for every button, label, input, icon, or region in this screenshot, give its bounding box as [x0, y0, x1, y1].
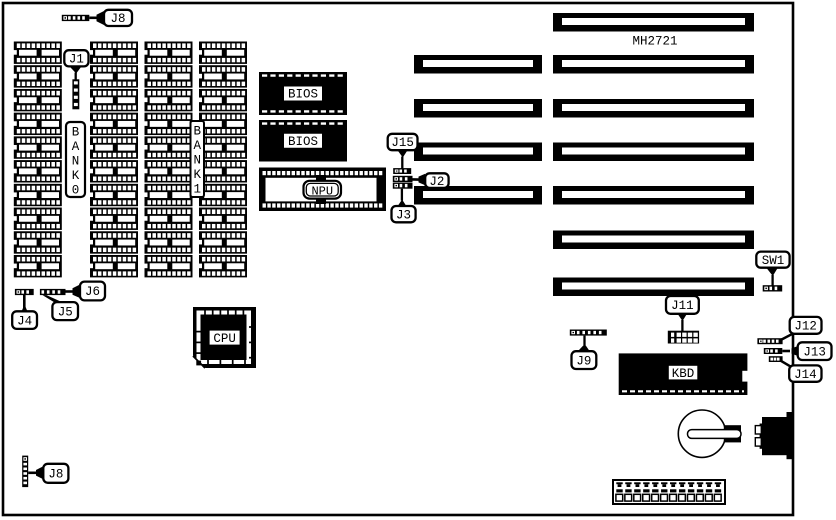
svg-text:B: B — [72, 126, 80, 140]
svg-text:NPU: NPU — [311, 185, 333, 199]
svg-text:K: K — [193, 168, 201, 182]
svg-text:SW1: SW1 — [762, 254, 785, 268]
svg-text:CPU: CPU — [213, 332, 236, 346]
svg-text:B: B — [193, 125, 201, 139]
svg-text:K: K — [72, 169, 80, 183]
svg-text:J11: J11 — [671, 299, 694, 313]
svg-text:J2: J2 — [429, 175, 444, 189]
svg-text:J9: J9 — [576, 354, 591, 368]
svg-text:J12: J12 — [794, 320, 817, 334]
svg-text:J3: J3 — [396, 208, 411, 222]
svg-text:J15: J15 — [391, 136, 414, 150]
svg-text:1: 1 — [193, 183, 201, 197]
svg-text:J6: J6 — [85, 285, 100, 299]
svg-text:BIOS: BIOS — [288, 135, 318, 149]
svg-text:KBD: KBD — [672, 367, 695, 381]
svg-text:0: 0 — [72, 184, 80, 198]
svg-text:J1: J1 — [69, 53, 84, 67]
svg-text:MH2721: MH2721 — [632, 35, 677, 49]
svg-text:J14: J14 — [794, 368, 817, 382]
svg-text:A: A — [72, 140, 80, 154]
svg-text:N: N — [72, 155, 80, 169]
svg-text:J4: J4 — [17, 314, 32, 328]
svg-text:J8: J8 — [110, 12, 125, 26]
svg-text:A: A — [193, 139, 201, 153]
svg-text:BIOS: BIOS — [288, 88, 318, 102]
svg-text:N: N — [193, 154, 201, 168]
svg-text:J8: J8 — [48, 468, 63, 482]
svg-text:J13: J13 — [803, 345, 826, 359]
svg-text:J5: J5 — [58, 305, 73, 319]
